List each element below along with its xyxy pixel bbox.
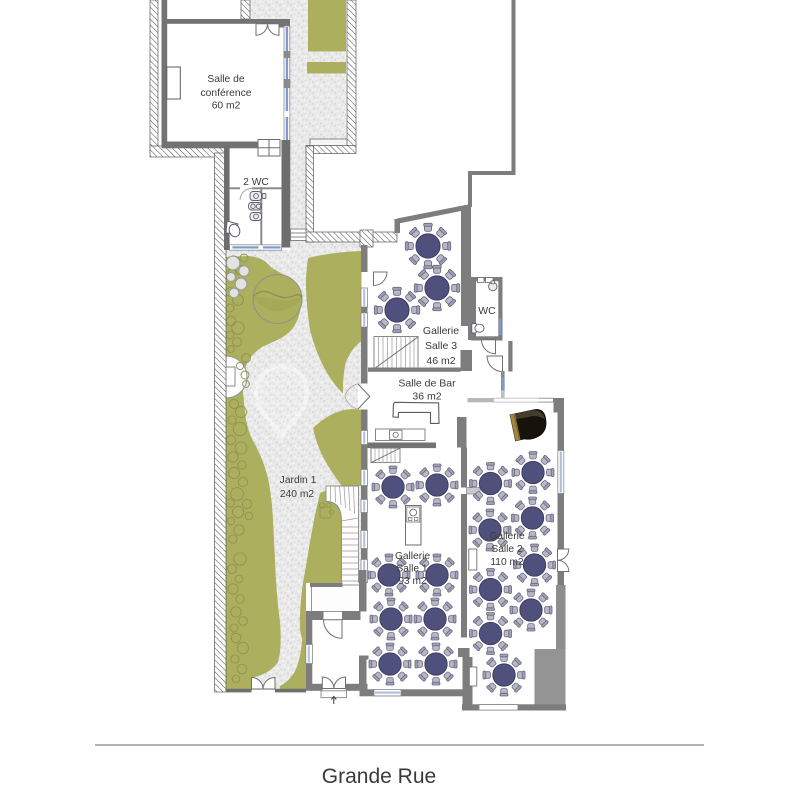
svg-text:Salle 2: Salle 2: [491, 544, 522, 555]
svg-text:Salle 3: Salle 3: [425, 340, 457, 352]
svg-text:Jardin 1: Jardin 1: [280, 475, 317, 486]
svg-text:110 m2: 110 m2: [490, 557, 524, 568]
svg-text:Gallerie: Gallerie: [395, 551, 430, 562]
svg-text:93 m2: 93 m2: [398, 576, 427, 587]
svg-text:60 m2: 60 m2: [212, 101, 241, 112]
svg-text:WC: WC: [478, 305, 496, 317]
svg-text:2 WC: 2 WC: [243, 177, 269, 188]
svg-text:Salle de: Salle de: [207, 74, 244, 85]
svg-text:Grande Rue: Grande Rue: [322, 765, 436, 788]
svg-text:46 m2: 46 m2: [426, 355, 455, 367]
svg-text:conférence: conférence: [201, 88, 252, 99]
svg-text:Salle de Bar: Salle de Bar: [398, 378, 456, 390]
svg-text:36 m2: 36 m2: [412, 391, 441, 403]
svg-text:Salle 1: Salle 1: [396, 564, 427, 575]
svg-text:240 m2: 240 m2: [280, 489, 315, 500]
svg-text:Gallerie: Gallerie: [489, 531, 524, 542]
svg-text:Gallerie: Gallerie: [423, 325, 459, 337]
